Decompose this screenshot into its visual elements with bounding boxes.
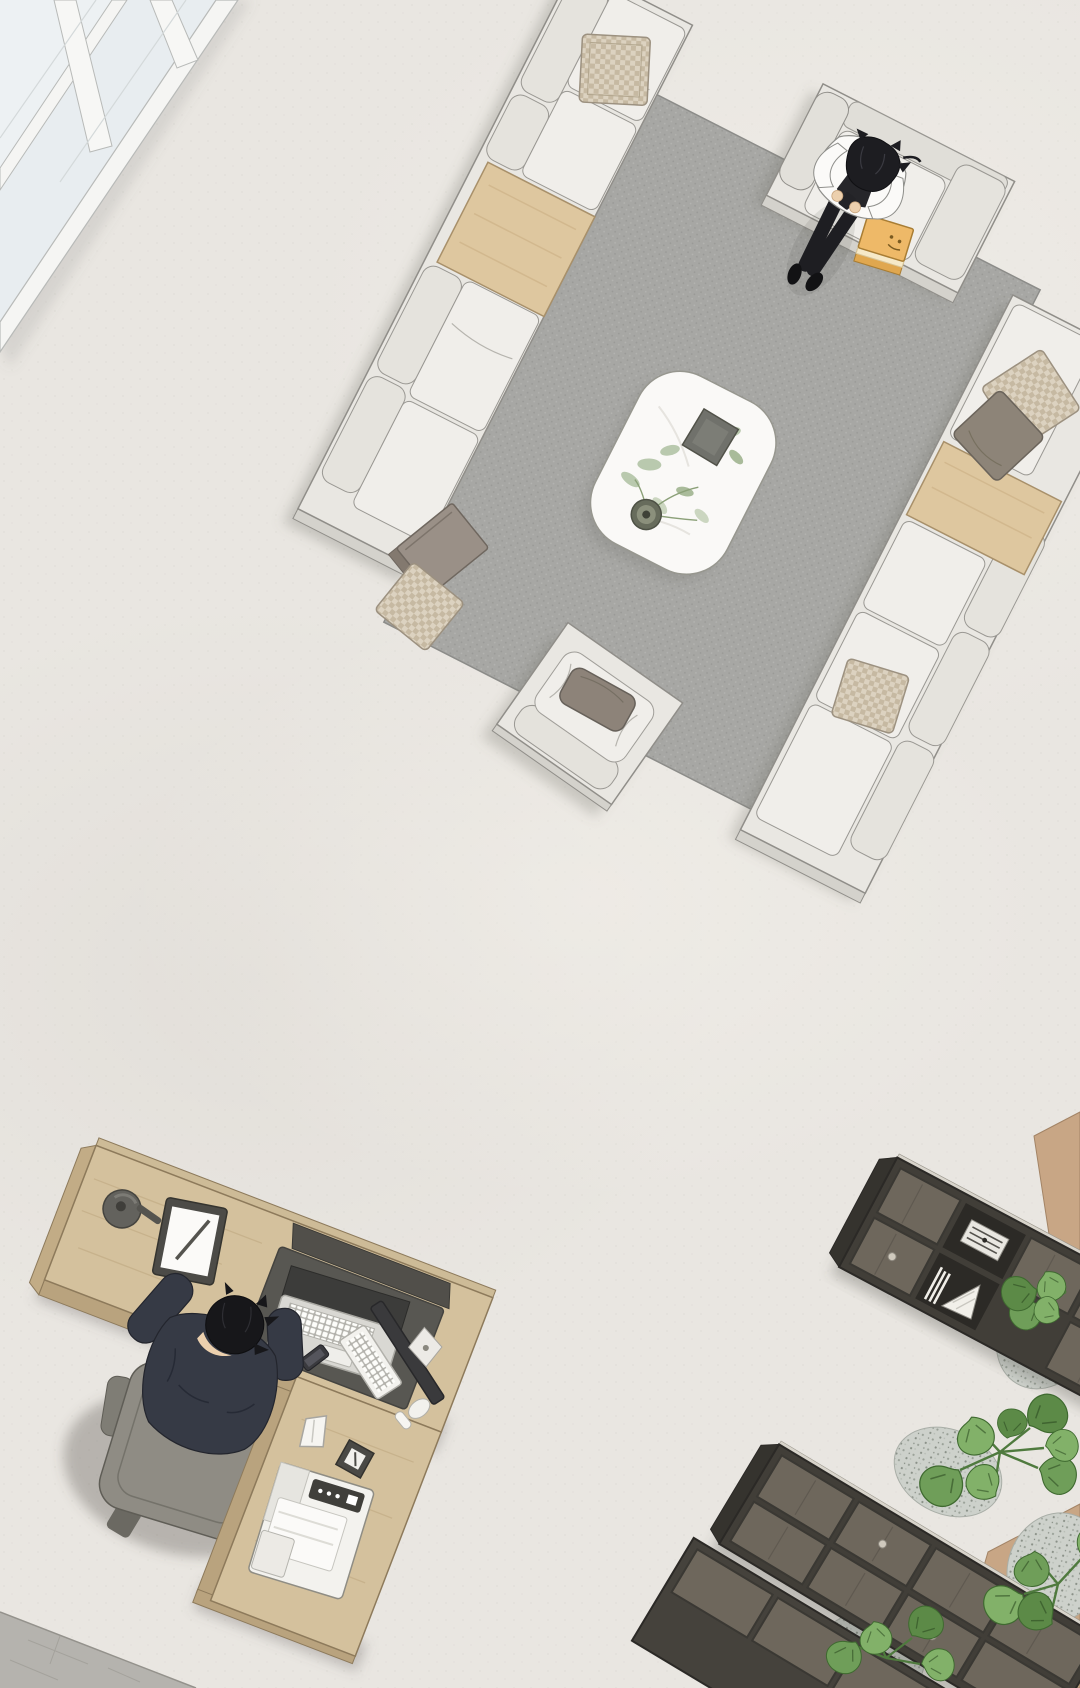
- checkered-pillow-1: [579, 34, 650, 105]
- office-topdown-scene: [0, 0, 1080, 1688]
- illustration-stage: [0, 0, 1080, 1688]
